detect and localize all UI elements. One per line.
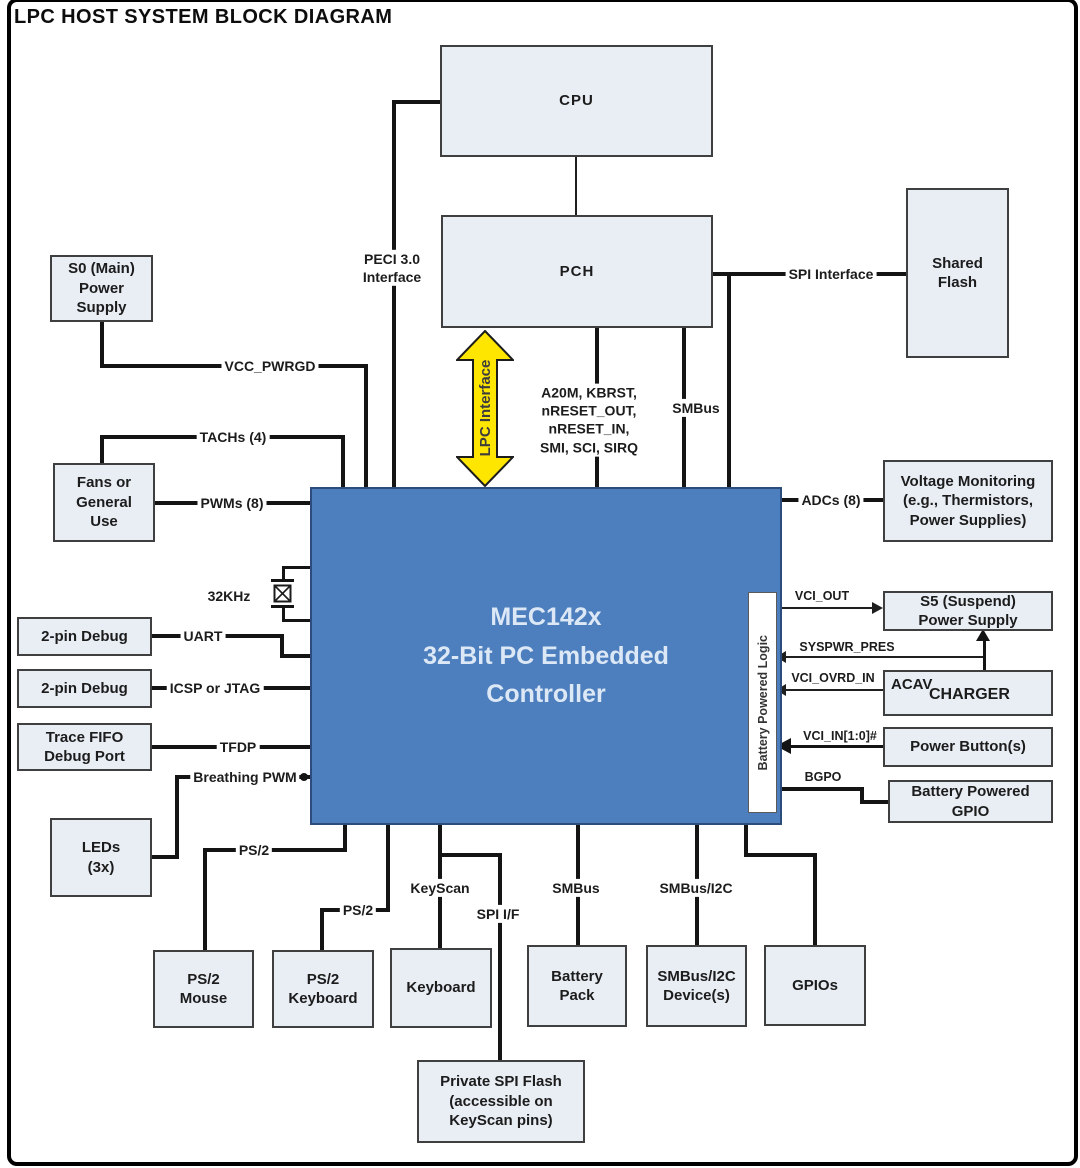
label-spi-if: SPI I/F — [474, 905, 523, 923]
line-vci-in — [791, 745, 883, 748]
label-uart: UART — [181, 627, 226, 645]
line-gpio-h — [744, 853, 817, 857]
line-uart-h2 — [280, 654, 311, 658]
label-icsp-jtag: ICSP or JTAG — [167, 679, 264, 697]
box-fans-general-use: Fans or General Use — [53, 463, 155, 542]
line-bgpo-h1 — [777, 787, 864, 791]
battery-powered-logic-label: Battery Powered Logic — [756, 635, 770, 770]
box-trace-fifo-debug-port: Trace FIFO Debug Port — [17, 723, 152, 771]
diagram-canvas: LPC HOST SYSTEM BLOCK DIAGRAM — [0, 0, 1080, 1168]
box-pch: PCH — [441, 215, 713, 328]
charger-label: CHARGER — [929, 685, 1010, 706]
line-gpio-v2 — [813, 853, 817, 947]
box-charger: ACAV CHARGER — [883, 670, 1053, 716]
box-cpu: CPU — [440, 45, 713, 157]
line-ps2b-v1 — [386, 823, 390, 912]
label-smbus-pch: SMBus — [669, 399, 722, 417]
line-spi-if-h — [438, 853, 502, 857]
label-spi-interface: SPI Interface — [786, 265, 877, 283]
charger-prefix-label: ACAV — [891, 675, 932, 695]
label-peci: PECI 3.0 Interface — [360, 250, 424, 286]
label-32khz: 32KHz — [205, 587, 254, 605]
box-power-buttons: Power Button(s) — [883, 727, 1053, 767]
diagram-title: LPC HOST SYSTEM BLOCK DIAGRAM — [14, 6, 392, 29]
box-gpios: GPIOs — [764, 945, 866, 1026]
box-ps2-keyboard: PS/2 Keyboard — [272, 950, 374, 1028]
box-ps2-mouse: PS/2 Mouse — [153, 950, 254, 1028]
box-s0-power-supply: S0 (Main) Power Supply — [50, 255, 153, 322]
box-battery-pack: Battery Pack — [527, 945, 627, 1027]
line-ps2a-v2 — [203, 848, 207, 950]
line-peci — [392, 100, 440, 104]
label-ps2-mouse: PS/2 — [236, 841, 272, 859]
label-adcs: ADCs (8) — [798, 491, 863, 509]
crystal-icon — [273, 584, 292, 603]
label-vci-in: VCI_IN[1:0]# — [801, 728, 879, 744]
line-vcc-v2 — [364, 364, 368, 489]
label-bgpo: BGPO — [803, 769, 844, 785]
line-tachs-v2 — [341, 435, 345, 489]
line-bgpo-h2 — [860, 800, 888, 804]
line-cpu-pch — [575, 157, 577, 215]
line-tachs-v1 — [100, 435, 104, 465]
label-ps2-keyboard: PS/2 — [340, 901, 376, 919]
label-syspwr-pres: SYSPWR_PRES — [797, 639, 896, 655]
box-mec142x-controller: MEC142x 32-Bit PC Embedded Controller — [310, 487, 782, 825]
box-keyboard: Keyboard — [390, 948, 492, 1028]
arrowhead-vci-out — [872, 602, 883, 614]
line-ps2a-h — [203, 848, 347, 852]
box-battery-powered-gpio: Battery Powered GPIO — [888, 780, 1053, 823]
box-smbus-i2c-devices: SMBus/I2C Device(s) — [646, 945, 747, 1027]
label-host-signals: A20M, KBRST, nRESET_OUT, nRESET_IN, SMI,… — [537, 384, 641, 457]
label-smbus-battery: SMBus — [549, 879, 602, 897]
breathing-pwm-endpoint — [300, 773, 308, 781]
label-vci-out: VCI_OUT — [793, 588, 851, 604]
xtal-plate-top — [271, 579, 294, 582]
box-shared-flash: Shared Flash — [906, 188, 1009, 358]
battery-powered-logic-strip: Battery Powered Logic — [748, 592, 777, 813]
label-tachs: TACHs (4) — [197, 428, 270, 446]
line-xtal-bot — [282, 619, 311, 622]
line-breathing-v — [175, 775, 179, 859]
box-2pin-debug-uart: 2-pin Debug — [17, 617, 152, 656]
line-syspwr-pres — [785, 656, 985, 658]
label-breathing-pwm: Breathing PWM — [190, 768, 299, 786]
box-s5-power-supply: S5 (Suspend) Power Supply — [883, 591, 1053, 631]
box-2pin-debug-icsp: 2-pin Debug — [17, 669, 152, 708]
label-smbus-i2c: SMBus/I2C — [656, 879, 735, 897]
label-pwms: PWMs (8) — [198, 494, 267, 512]
line-vci-out — [779, 607, 873, 609]
label-keyscan: KeyScan — [407, 879, 472, 897]
box-leds: LEDs (3x) — [50, 818, 152, 897]
line-gpio-v1 — [744, 823, 748, 857]
line-peci-v — [392, 100, 396, 489]
label-tfdp: TFDP — [217, 738, 260, 756]
line-vci-ovrd — [786, 689, 883, 691]
label-vcc-pwrgd: VCC_PWRGD — [221, 357, 318, 375]
line-vcc-v1 — [100, 322, 104, 368]
box-voltage-monitoring: Voltage Monitoring (e.g., Thermistors, P… — [883, 460, 1053, 542]
line-xtal-top — [282, 566, 311, 569]
lpc-interface-label: LPC Interface — [476, 360, 494, 457]
line-leds — [152, 855, 179, 859]
label-vci-ovrd-in: VCI_OVRD_IN — [789, 670, 876, 686]
box-private-spi-flash: Private SPI Flash (accessible on KeyScan… — [417, 1060, 585, 1143]
line-charger-to-s5 — [983, 640, 986, 670]
line-spi-branch — [727, 272, 731, 489]
line-ps2b-v2 — [320, 908, 324, 952]
line-spi-if-v — [498, 853, 502, 1062]
controller-label: MEC142x 32-Bit PC Embedded Controller — [423, 598, 669, 714]
